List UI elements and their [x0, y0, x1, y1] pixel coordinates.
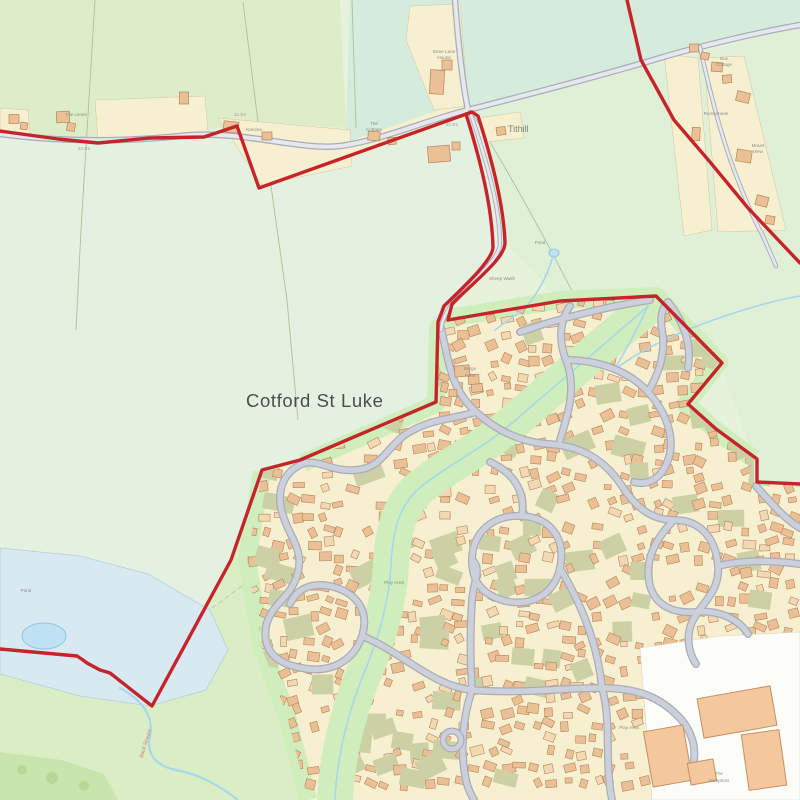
hamlet-label: Tithill: [508, 124, 529, 134]
building: [442, 60, 452, 70]
house-label-dene-lane-2: House: [437, 55, 451, 60]
building: [20, 122, 28, 130]
building: [700, 52, 709, 61]
building: [66, 122, 75, 131]
building: [262, 132, 272, 140]
building: [452, 142, 460, 150]
map-canvas: Cotford St Luke Tithill The Limes Kamina…: [0, 0, 800, 800]
building: [496, 126, 506, 135]
house-label-box-cottage-2: Cottage: [716, 62, 733, 67]
house-label-mount-view: Mount: [752, 143, 765, 148]
spot-height-2: 42.3m: [234, 112, 247, 117]
place-label: Cotford St Luke: [246, 390, 384, 411]
hamptons-label: The: [715, 771, 723, 776]
building: [471, 383, 483, 392]
sheep-wash-label: Sheep Wash: [489, 276, 516, 281]
spot-height-3: 42.4m: [446, 122, 459, 127]
building: [722, 75, 732, 84]
building: [765, 215, 775, 224]
pond-large: [22, 623, 66, 649]
map-viewport: Cotford St Luke Tithill The Limes Kamina…: [0, 0, 800, 800]
building: [692, 127, 701, 140]
pond-small-label: Pond: [535, 240, 546, 245]
building: [9, 115, 19, 124]
spot-height-1: 42.1m: [78, 146, 91, 151]
house-label-dene-lane: Dene Lane: [433, 49, 456, 54]
building: [429, 70, 444, 95]
house-label-mount-view-2: View: [753, 149, 764, 154]
pond-small: [549, 249, 559, 257]
play-area-east-label: Play Area: [619, 725, 639, 730]
house-label-the-limes: The Limes: [65, 112, 87, 117]
building: [180, 92, 189, 104]
building: [690, 44, 699, 52]
hamptons-label-2: Hamptons: [709, 778, 731, 783]
house-label-the-cottage: The: [370, 121, 378, 126]
farm-label-2: Farm: [465, 373, 476, 378]
house-label-kamina: Kamina: [246, 127, 262, 132]
building: [741, 730, 786, 791]
building: [368, 131, 381, 141]
pond-marsh-label: Pond: [21, 588, 32, 593]
farm-label: Barge: [464, 366, 477, 371]
house-label-box-cottage: Box: [720, 56, 729, 61]
house-label-the-cottage-2: Cottage: [366, 127, 383, 132]
building: [427, 145, 450, 163]
play-area-west-label: Play Area: [384, 580, 404, 585]
building: [449, 390, 457, 397]
house-label-runnymede: Runnymede: [704, 111, 729, 116]
building: [736, 149, 753, 163]
